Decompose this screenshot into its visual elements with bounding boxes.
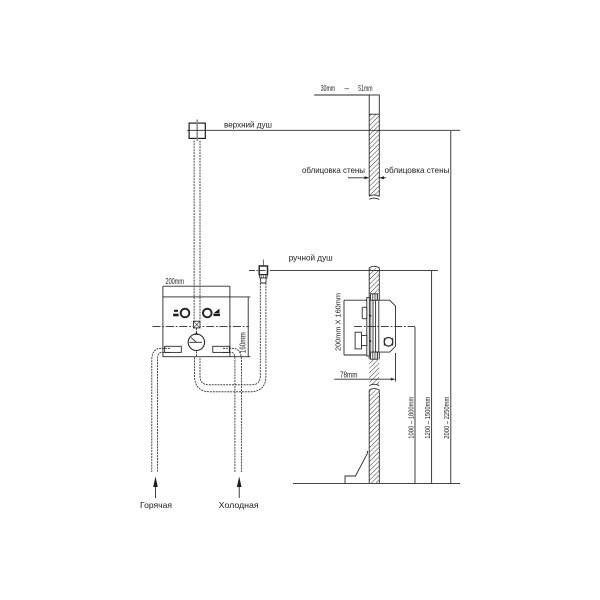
svg-text:2000 – 2250mm: 2000 – 2250mm [442, 397, 451, 439]
svg-text:1000 – 1800mm: 1000 – 1800mm [406, 397, 415, 439]
svg-text:облицовка стены: облицовка стены [385, 165, 450, 175]
svg-text:1200 – 1500mm: 1200 – 1500mm [423, 397, 432, 439]
svg-text:51mm: 51mm [358, 84, 372, 93]
svg-text:верхний душ: верхний душ [224, 119, 272, 129]
svg-text:Холодная: Холодная [219, 500, 259, 510]
svg-text:30mm: 30mm [321, 84, 335, 93]
svg-text:200mm: 200mm [166, 277, 185, 286]
svg-text:160mm: 160mm [239, 332, 248, 353]
svg-text:ручной душ: ручной душ [289, 253, 333, 263]
svg-text:облицовка стены: облицовка стены [302, 165, 365, 175]
svg-text:–: – [345, 84, 350, 93]
svg-text:Горячая: Горячая [140, 500, 172, 510]
svg-text:200mm X 160mm: 200mm X 160mm [334, 293, 343, 351]
svg-text:78mm: 78mm [340, 370, 358, 379]
